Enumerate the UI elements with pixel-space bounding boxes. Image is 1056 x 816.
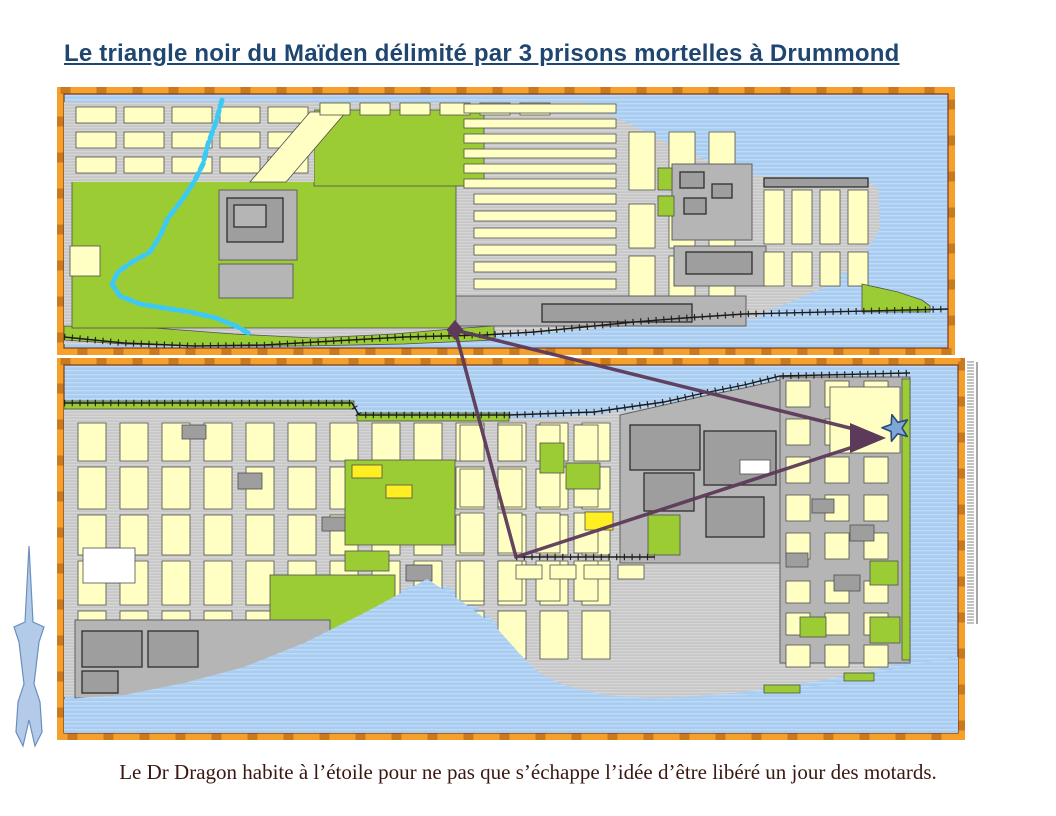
caption-text: Le Dr Dragon habite à l’étoile pour ne p… — [0, 760, 1056, 785]
page-title: Le triangle noir du Maïden délimité par … — [64, 40, 899, 68]
map-panel-bottom — [57, 358, 965, 740]
document-page: Le triangle noir du Maïden délimité par … — [0, 0, 1056, 816]
map-panel-top — [57, 87, 955, 355]
street-index-strip — [967, 362, 977, 624]
spear-marker — [14, 546, 44, 746]
